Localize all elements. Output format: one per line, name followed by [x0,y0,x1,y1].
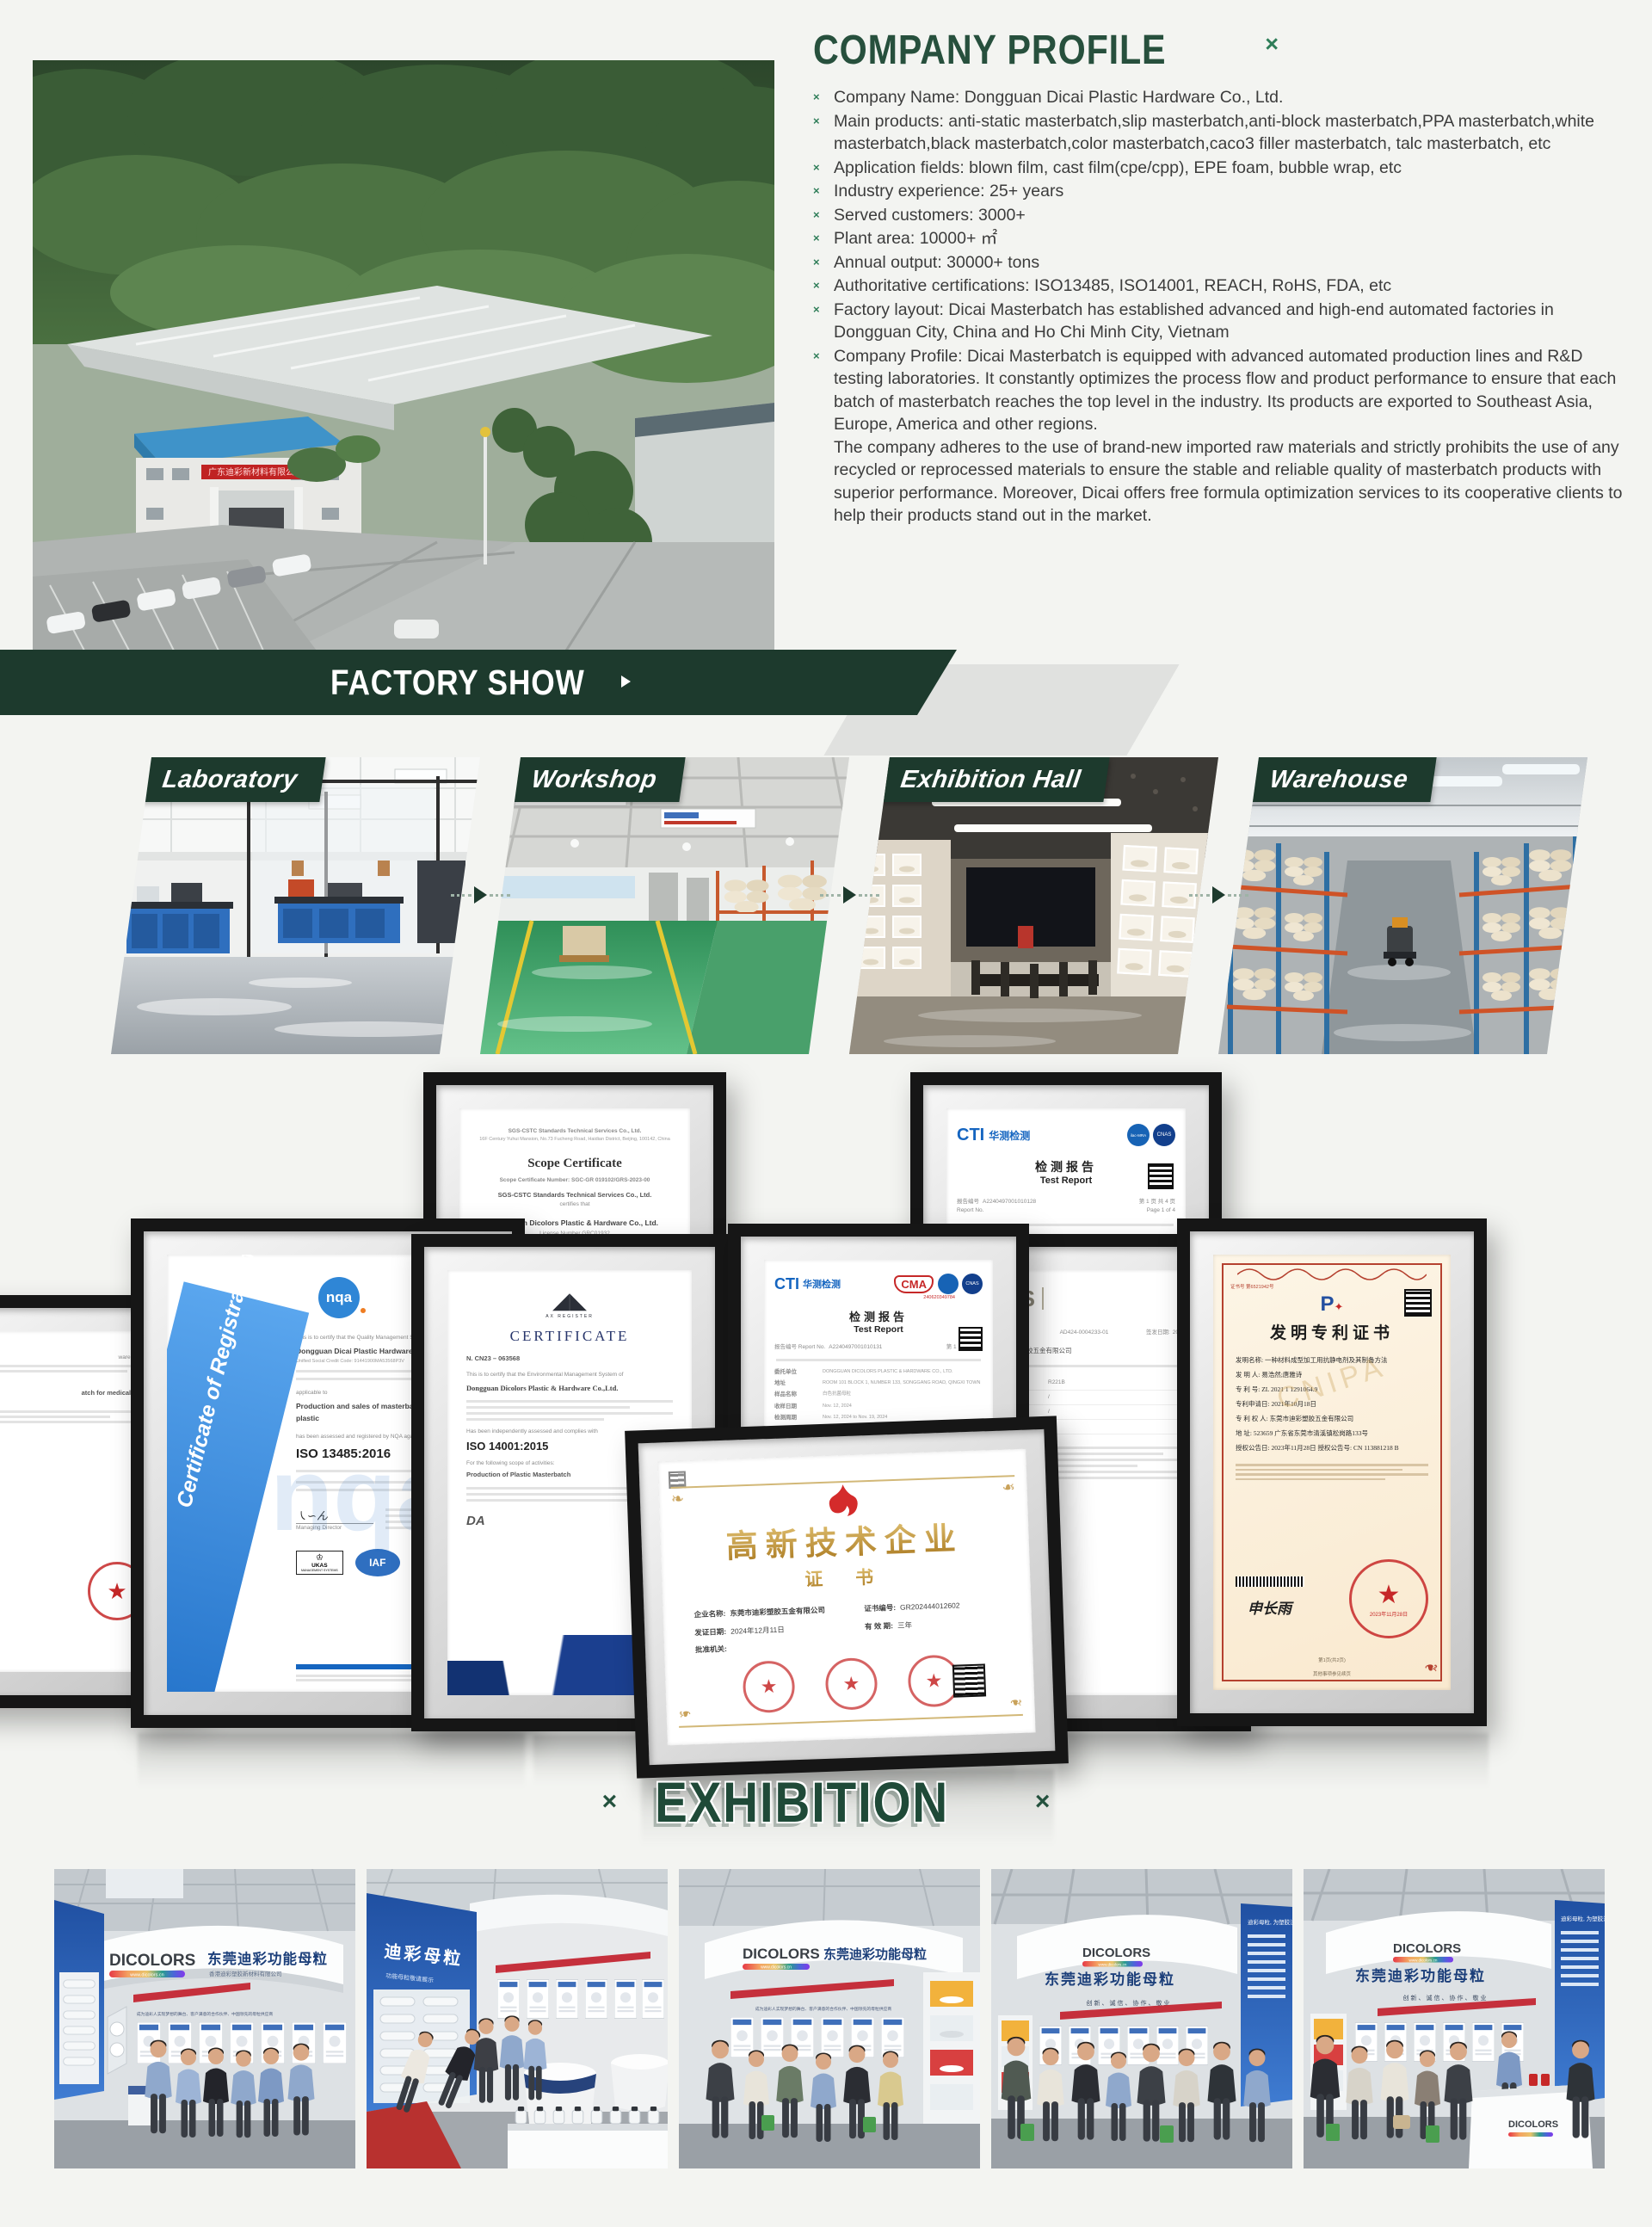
factory-item-label: Warehouse [1241,757,1437,802]
flame-logo [828,1484,858,1517]
factory-show-banner: FACTORY SHOW [0,650,957,715]
decorative-x-icon: × [1265,31,1279,58]
x-bullet-icon: × [813,86,834,109]
qr-code [952,1663,986,1697]
factory-aerial-illustration: 广东迪彩新材料有限公司 [33,60,774,651]
banner-sub: 香港迪彩塑胶新材料有限公司 [209,1970,282,1977]
banner-chinese: 东莞迪彩功能母粒 [1355,1967,1486,1984]
brand-logo-text: DICOLORS [1393,1941,1461,1956]
banner-chinese: 东莞迪彩功能母粒 [1045,1971,1175,1988]
next-arrow-icon [843,886,856,904]
factory-item-label: Laboratory [133,757,326,802]
list-item: ×Plant area: 10000+ ㎡ [813,227,1630,250]
list-item: ×Application fields: blown film, cast fi… [813,157,1630,180]
banner-chinese: 东莞迪彩功能母粒 [207,1950,328,1967]
list-item: ×Industry experience: 25+ years [813,180,1630,203]
wall-slogan: 成为迪彩人实现梦想的舞台、客户满意的合作伙伴、中国领先的母粒供应商 [137,2011,274,2017]
qr-code [959,1327,983,1351]
x-bullet-icon: × [813,180,834,203]
motto-text: 创新、诚信、协作、敬业 [1087,1999,1172,2007]
factory-photo-workshop: Workshop [480,757,849,1054]
cma-badge: CMA [894,1275,934,1293]
factory-photo-exhibition-hall: Exhibition Hall [849,757,1218,1054]
brand-url: www.dicolors.cn [1409,1959,1438,1963]
flow-arrow [1182,886,1254,904]
exhibition-photo-3: DICOLORS www.dicolors.cn 东莞迪彩功能母粒 成为迪彩人实… [679,1869,980,2168]
exhibition-photo-2: 迪彩母粒 功能母粒敬请展示 [367,1869,668,2168]
brand-logo-text: DICOLORS [743,1946,820,1962]
approval-seals: ★ ★ ★ [743,1654,961,1713]
certificate-frame-patent: CNIPA 证书号 第6521942号 P✦ 发明专利证书 发明名称: 一种材料… [1177,1218,1487,1726]
decorative-x-icon: × [1035,1787,1051,1817]
counter-brand-text: DICOLORS [1508,2119,1558,2130]
official-seal: ★ 2023年11月28日 [1349,1559,1428,1638]
list-item: ×Factory layout: Dicai Masterbatch has e… [813,299,1630,344]
certificate-title: Scope Certificate [459,1157,690,1171]
list-item: ×Company Profile: Dicai Masterbatch is e… [813,345,1630,527]
cti-logo: CTI [774,1275,799,1293]
certificate-frame-hitech: ❧ ❧ ❧ ❧ 高新技术企业 证 书 企业名称:东莞市迪彩塑胶五金有限公司 发证… [625,1416,1069,1778]
decorative-x-icon: × [602,1787,618,1817]
brand-logo-text: DICOLORS [1082,1946,1150,1960]
ukas-mark: UKAS [301,1563,338,1569]
x-bullet-icon: × [813,110,834,156]
page-title: COMPANY PROFILE [813,29,1166,72]
section-title: FACTORY SHOW [330,663,585,703]
qr-code [1148,1163,1174,1189]
side-panel-text: 迪彩母粒, 为塑胶注入功能和色彩 [1561,1915,1605,1922]
qr-code [1404,1289,1432,1317]
x-bullet-icon: × [813,299,834,344]
list-item: ×Authoritative certifications: ISO13485,… [813,275,1630,298]
company-profile-list: ×Company Name: Dongguan Dicai Plastic Ha… [813,86,1630,527]
factory-photo-laboratory: Laboratory [111,757,480,1054]
next-arrow-icon [1212,886,1225,904]
x-bullet-icon: × [813,204,834,227]
wall-slogan: 成为迪彩人实现梦想的舞台、客户满意的合作伙伴、中国领先的母粒供应商 [755,2006,892,2012]
ornament-top [1237,1268,1427,1280]
exhibition-heading: × EXHIBITION × [0,1769,1652,1835]
list-item: ×Served customers: 3000+ [813,204,1630,227]
ilac-mra-badge: ilac-MRA [1127,1124,1150,1146]
x-bullet-icon: × [813,251,834,275]
booth-crowd-illustration: DICOLORS www.dicolors.cn 东莞迪彩功能母粒 迪彩母粒, … [991,1869,1292,2168]
cnas-badge: CNAS [1153,1124,1175,1146]
cti-logo: CTI [957,1126,984,1145]
da-mark: DA [466,1514,485,1528]
side-panel-text: 迪彩母粒, 为塑胶注入功能和色彩 [1248,1918,1292,1926]
factory-item-label: Workshop [502,757,686,802]
booth-visitors-illustration: DICOLORS www.dicolors.cn 东莞迪彩功能母粒 成为迪彩人实… [679,1869,980,2168]
x-bullet-icon: × [813,345,834,527]
list-item: ×Main products: anti-static masterbatch,… [813,110,1630,156]
booth-display-illustration: 迪彩母粒 功能母粒敬请展示 [367,1869,668,2168]
exhibition-photo-4: DICOLORS www.dicolors.cn 东莞迪彩功能母粒 迪彩母粒, … [991,1869,1292,2168]
list-item: ×Company Name: Dongguan Dicai Plastic Ha… [813,86,1630,109]
motto-text: 创新、诚信、协作、敬业 [1403,1994,1489,2002]
factory-aerial-photo: 广东迪彩新材料有限公司 [33,60,774,651]
x-bullet-icon: × [813,157,834,180]
signature: 申长雨 [1248,1596,1291,1618]
cnas-badge: CNAS [962,1274,983,1294]
exhibition-photo-1: DICOLORS www.dicolors.cn 东莞迪彩功能母粒 香港迪彩塑胶… [54,1869,355,2168]
section-title: EXHIBITION [655,1769,949,1835]
factory-item-label: Exhibition Hall [872,757,1109,802]
x-bullet-icon: × [813,275,834,298]
flow-arrow [444,886,516,904]
company-profile-section: COMPANY PROFILE × ×Company Name: Donggua… [813,29,1630,528]
certificate-title: 检测报告 [764,1308,993,1324]
factory-photo-warehouse: Warehouse [1218,757,1587,1054]
brand-url: www.dicolors.cn [761,1965,792,1971]
report-rows: 委托单位DONGGUAN DICOLORS PLASTIC & HARDWARE… [774,1368,983,1422]
x-bullet-icon: × [813,227,834,250]
list-item: ×Annual output: 30000+ tons [813,251,1630,275]
booth-counter-illustration: DICOLORS www.dicolors.cn 东莞迪彩功能母粒 迪彩母粒, … [1304,1869,1605,2168]
brand-logo-text: DICOLORS [109,1952,195,1970]
barcode [1236,1576,1304,1587]
brand-url: www.dicolors.cn [1099,1963,1127,1967]
brand-url: www.dicolors.cn [129,1973,163,1978]
exhibition-photo-5: DICOLORS www.dicolors.cn 东莞迪彩功能母粒 迪彩母粒, … [1304,1869,1605,2168]
next-arrow-icon [474,886,487,904]
banner-chinese: 东莞迪彩功能母粒 [823,1946,927,1962]
play-arrow-icon [621,676,631,688]
nqa-logo: nqa [318,1277,360,1318]
flow-arrow [813,886,885,904]
certificate-title: CERTIFICATE [447,1328,692,1345]
booth-team-illustration: DICOLORS www.dicolors.cn 东莞迪彩功能母粒 香港迪彩塑胶… [54,1869,355,2168]
page: 广东迪彩新材料有限公司 [0,0,1652,2227]
